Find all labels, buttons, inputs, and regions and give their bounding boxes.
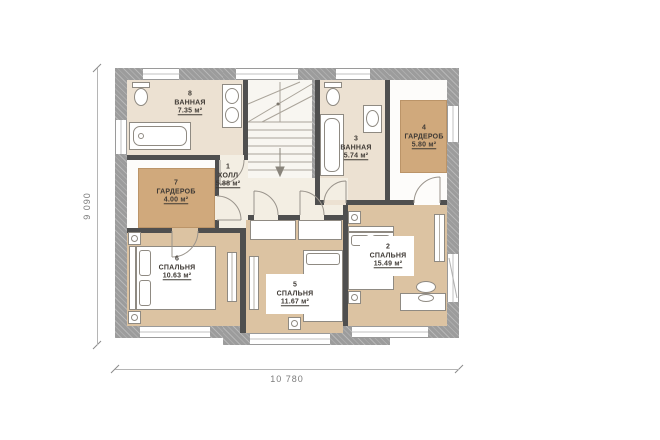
chair-icon [416, 281, 436, 293]
dimension-width-label: 10 780 [270, 374, 304, 384]
room-area: 4.00 м² [156, 196, 195, 205]
partition-wall [243, 80, 248, 155]
room-hall-landing-floor [248, 178, 348, 215]
radiator-icon [227, 252, 237, 302]
room-label-wardrobe-4: 4 ГАРДЕРОБ 5.80 м² [404, 124, 443, 150]
sink-icon [366, 110, 379, 127]
nightstand-icon [131, 235, 138, 242]
window-icon [336, 68, 370, 80]
window-icon [447, 106, 459, 142]
room-area: 5.80 м² [404, 141, 443, 150]
room-label-hall: 1 ХОЛЛ 5.88 м² [216, 163, 240, 189]
door-opening [172, 228, 198, 233]
pillow-icon [306, 253, 340, 265]
window-icon [143, 68, 179, 80]
room-name: ВАННАЯ [340, 144, 371, 153]
room-label-bedroom-5: 5 СПАЛЬНЯ 11.67 м² [277, 281, 314, 307]
room-label-bathroom-3: 3 ВАННАЯ 5.74 м² [340, 135, 371, 161]
stairwell-floor [248, 80, 312, 178]
room-label-bathroom-8: 8 ВАННАЯ 7.35 м² [174, 90, 205, 116]
room-number: 2 [370, 243, 407, 252]
room-area: 5.88 м² [216, 180, 240, 189]
room-area: 10.63 м² [159, 272, 196, 281]
room-label-bedroom-2: 2 СПАЛЬНЯ 15.49 м² [370, 243, 407, 269]
room-number: 1 [216, 163, 240, 172]
radiator-icon [434, 214, 445, 262]
window-icon [115, 120, 127, 154]
toilet-icon [134, 88, 148, 106]
window-icon [140, 326, 210, 338]
partition-wall [385, 80, 390, 205]
floor-plan-canvas: 9 090 10 780 1 ХОЛЛ 5.88 м² 2 СПАЛЬНЯ 15… [0, 0, 660, 440]
room-name: ВАННАЯ [174, 99, 205, 108]
pillow-icon [139, 250, 151, 276]
nightstand-icon [351, 294, 358, 301]
room-name: ХОЛЛ [216, 172, 240, 181]
room-area: 15.49 м² [370, 260, 407, 269]
dimension-line-horizontal [115, 369, 459, 370]
room-area: 11.67 м² [277, 298, 314, 307]
room-number: 6 [159, 255, 196, 264]
room-name: СПАЛЬНЯ [159, 264, 196, 273]
nightstand-icon [131, 314, 138, 321]
dimension-height-label: 9 090 [82, 192, 92, 220]
room-number: 4 [404, 124, 443, 133]
room-name: ГАРДЕРОБ [404, 133, 443, 142]
door-opening [215, 196, 219, 220]
room-area: 7.35 м² [174, 107, 205, 116]
window-icon [236, 68, 298, 80]
room-number: 7 [156, 179, 195, 188]
toilet-icon [326, 88, 340, 106]
bed-icon [129, 246, 136, 310]
nightstand-icon [291, 320, 298, 327]
room-name: СПАЛЬНЯ [370, 252, 407, 261]
radiator-icon [249, 256, 259, 310]
room-label-bedroom-6: 6 СПАЛЬНЯ 10.63 м² [159, 255, 196, 281]
door-opening [220, 155, 244, 160]
door-opening [324, 200, 346, 205]
room-area: 5.74 м² [340, 152, 371, 161]
room-number: 8 [174, 90, 205, 99]
window-icon [250, 333, 330, 345]
dimension-line-vertical [97, 68, 98, 345]
chair-icon [418, 294, 434, 302]
room-label-wardrobe-7: 7 ГАРДЕРОБ 4.00 м² [156, 179, 195, 205]
room-number: 5 [277, 281, 314, 290]
partition-wall [240, 228, 246, 333]
drain-icon [138, 133, 144, 139]
window-icon [447, 254, 459, 302]
room-name: СПАЛЬНЯ [277, 290, 314, 299]
nightstand-icon [351, 214, 358, 221]
bathtub-icon [324, 118, 340, 172]
sink-icon [225, 107, 239, 123]
sink-icon [225, 88, 239, 104]
closet-icon [250, 220, 296, 240]
door-opening [414, 200, 440, 205]
window-icon [352, 326, 428, 338]
pillow-icon [139, 280, 151, 306]
closet-icon [298, 220, 342, 240]
room-number: 3 [340, 135, 371, 144]
room-name: ГАРДЕРОБ [156, 188, 195, 197]
